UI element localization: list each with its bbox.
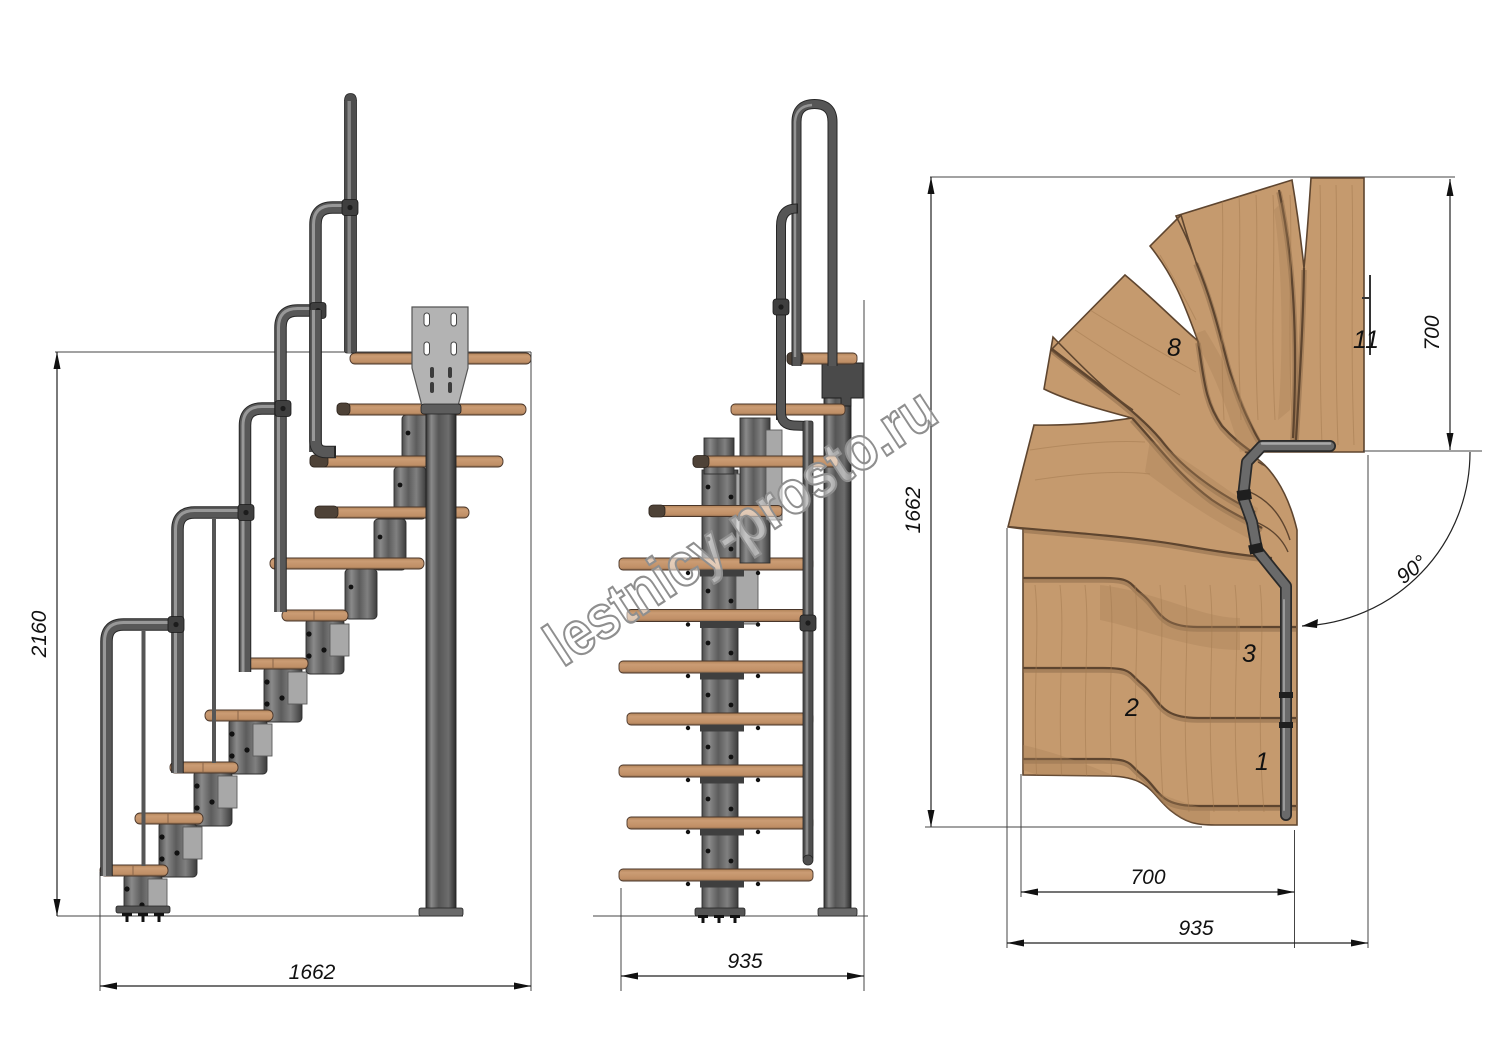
svg-text:935: 935 xyxy=(1178,917,1213,940)
svg-text:1662: 1662 xyxy=(289,961,336,984)
svg-text:2160: 2160 xyxy=(28,610,51,658)
svg-text:1: 1 xyxy=(1255,748,1269,776)
svg-text:1662: 1662 xyxy=(902,486,925,533)
svg-text:2: 2 xyxy=(1124,694,1139,722)
svg-text:3: 3 xyxy=(1242,640,1256,668)
svg-text:90°: 90° xyxy=(1392,551,1431,589)
svg-text:700: 700 xyxy=(1421,315,1444,350)
svg-text:935: 935 xyxy=(727,950,762,973)
svg-text:700: 700 xyxy=(1130,866,1165,889)
svg-text:8: 8 xyxy=(1167,334,1181,362)
svg-text:11: 11 xyxy=(1353,326,1379,354)
